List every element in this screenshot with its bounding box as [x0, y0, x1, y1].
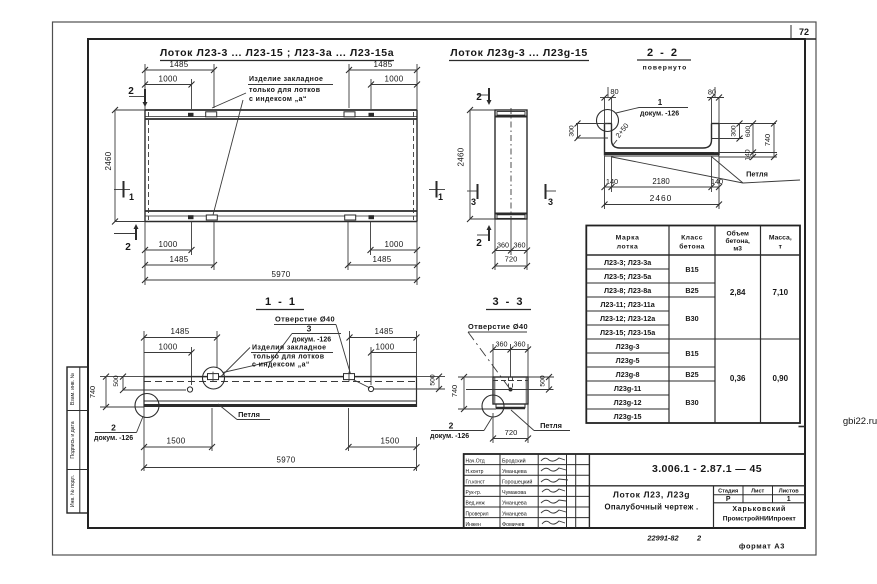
- svg-text:Масса,: Масса,: [769, 235, 792, 242]
- svg-text:720: 720: [505, 428, 518, 437]
- svg-text:повернуто: повернуто: [643, 65, 688, 72]
- svg-text:Отверстие Ø40: Отверстие Ø40: [468, 322, 528, 331]
- svg-text:1000: 1000: [159, 240, 178, 249]
- svg-text:140: 140: [606, 177, 618, 186]
- svg-text:300: 300: [731, 125, 738, 137]
- svg-text:Класс: Класс: [681, 235, 703, 242]
- svg-text:Отверстие Ø40: Отверстие Ø40: [275, 315, 335, 324]
- svg-text:Чумакова: Чумакова: [502, 490, 526, 496]
- svg-text:Горошецкий: Горошецкий: [502, 479, 532, 486]
- svg-text:72: 72: [799, 27, 809, 37]
- svg-text:Опалубочный чертеж .: Опалубочный чертеж .: [605, 503, 699, 512]
- svg-text:360: 360: [514, 241, 526, 250]
- svg-text:Р: Р: [726, 496, 731, 503]
- svg-text:Петля: Петля: [746, 170, 768, 179]
- svg-text:лотка: лотка: [617, 244, 639, 251]
- svg-text:5970: 5970: [272, 270, 291, 279]
- svg-text:Инжен: Инжен: [466, 522, 481, 528]
- svg-text:бетона: бетона: [679, 243, 705, 251]
- svg-text:Уманцева: Уманцева: [502, 511, 527, 517]
- svg-text:Л23g-5: Л23g-5: [616, 356, 640, 365]
- svg-text:500: 500: [540, 375, 547, 387]
- svg-text:600: 600: [745, 126, 752, 138]
- svg-text:докум. -126: докум. -126: [94, 435, 133, 442]
- svg-text:Стадия: Стадия: [718, 488, 738, 494]
- svg-text:360: 360: [497, 241, 509, 250]
- svg-text:Л23g-8: Л23g-8: [616, 370, 640, 379]
- svg-text:3: 3: [471, 197, 476, 207]
- svg-text:2: 2: [128, 86, 134, 97]
- svg-text:1000: 1000: [159, 75, 178, 84]
- svg-text:В25: В25: [685, 370, 698, 379]
- svg-text:2180: 2180: [652, 177, 670, 186]
- svg-text:2: 2: [111, 423, 116, 433]
- svg-text:Бродский: Бродский: [502, 457, 526, 464]
- svg-text:1485: 1485: [374, 60, 393, 69]
- svg-text:Гл.конст: Гл.конст: [466, 480, 486, 486]
- svg-text:формат А3: формат А3: [739, 542, 785, 551]
- svg-text:1000: 1000: [385, 75, 404, 84]
- svg-text:Нач.Отд: Нач.Отд: [466, 458, 485, 464]
- svg-text:1 - 1: 1 - 1: [265, 296, 297, 308]
- svg-text:740: 740: [763, 134, 772, 146]
- svg-text:докум. -126: докум. -126: [640, 111, 679, 118]
- svg-text:2460: 2460: [650, 193, 673, 203]
- svg-text:Лоток Л23g-3 ... Л23g-15: Лоток Л23g-3 ... Л23g-15: [450, 47, 588, 59]
- svg-text:ПромстройНИИпроект: ПромстройНИИпроект: [723, 515, 797, 523]
- svg-text:300: 300: [569, 125, 576, 137]
- svg-text:2 - 2: 2 - 2: [647, 47, 679, 59]
- svg-text:720: 720: [505, 255, 518, 264]
- svg-text:1485: 1485: [373, 255, 392, 264]
- svg-text:1: 1: [129, 192, 134, 202]
- svg-text:740: 740: [88, 386, 97, 398]
- svg-text:Рук-гр.: Рук-гр.: [466, 490, 482, 496]
- svg-text:Л23g-3: Л23g-3: [616, 342, 640, 351]
- svg-text:500: 500: [430, 374, 437, 386]
- svg-text:Проверил: Проверил: [466, 511, 489, 517]
- svg-text:Л23g-12: Л23g-12: [614, 398, 642, 407]
- svg-text:Л23-3; Л23-3а: Л23-3; Л23-3а: [604, 258, 652, 267]
- svg-text:80: 80: [610, 87, 618, 96]
- svg-text:с индексом „а“: с индексом „а“: [249, 96, 307, 103]
- svg-text:Инв. № подл.: Инв. № подл.: [70, 475, 76, 507]
- svg-text:7,10: 7,10: [773, 288, 789, 297]
- svg-text:1485: 1485: [170, 255, 189, 264]
- svg-text:Взам. инв. №: Взам. инв. №: [70, 372, 76, 405]
- svg-text:2: 2: [476, 92, 482, 103]
- svg-text:В30: В30: [685, 398, 698, 407]
- svg-text:Лоток Л23, Л23g: Лоток Л23, Л23g: [613, 490, 690, 500]
- svg-text:м3: м3: [733, 246, 742, 253]
- svg-text:1485: 1485: [171, 327, 190, 336]
- svg-text:1000: 1000: [385, 240, 404, 249]
- svg-text:2: 2: [476, 238, 482, 249]
- svg-text:Изделие закладное: Изделие закладное: [249, 76, 323, 83]
- svg-text:2: 2: [449, 421, 454, 431]
- svg-text:только для лотков: только для лотков: [249, 87, 321, 94]
- svg-text:2460: 2460: [104, 151, 113, 170]
- svg-text:3: 3: [548, 197, 553, 207]
- svg-text:1485: 1485: [170, 60, 189, 69]
- svg-text:1000: 1000: [159, 343, 178, 352]
- svg-text:Лоток Л23-3 ... Л23-15 ; Л23: Лоток Л23-3 ... Л23-15 ; Л23-3а ... Л23-…: [160, 47, 394, 59]
- svg-text:Изделия закладное: Изделия закладное: [252, 345, 326, 352]
- svg-text:В15: В15: [685, 265, 698, 274]
- svg-text:140: 140: [745, 149, 752, 161]
- svg-text:Л23-5; Л23-5а: Л23-5; Л23-5а: [604, 272, 652, 281]
- svg-text:1000: 1000: [376, 343, 395, 352]
- svg-text:0,90: 0,90: [773, 374, 789, 383]
- svg-text:2,84: 2,84: [730, 288, 746, 297]
- svg-text:2: 2: [696, 534, 702, 543]
- svg-text:Марка: Марка: [616, 235, 640, 242]
- svg-text:с индексом „а“: с индексом „а“: [252, 362, 310, 369]
- svg-text:1: 1: [438, 192, 443, 202]
- svg-text:Уманцева: Уманцева: [502, 469, 527, 475]
- svg-text:Фомичев: Фомичев: [502, 522, 525, 528]
- svg-text:докум. -126: докум. -126: [430, 433, 469, 440]
- svg-text:3 - 3: 3 - 3: [492, 296, 524, 308]
- svg-text:Л23-12; Л23-12а: Л23-12; Л23-12а: [600, 314, 656, 323]
- svg-text:1485: 1485: [375, 327, 394, 336]
- svg-text:3: 3: [307, 324, 312, 334]
- svg-text:1: 1: [658, 98, 663, 107]
- svg-text:бетона,: бетона,: [726, 237, 750, 245]
- svg-text:Объем: Объем: [727, 230, 750, 238]
- svg-text:В25: В25: [685, 286, 698, 295]
- svg-text:В15: В15: [685, 349, 698, 358]
- svg-text:360: 360: [514, 340, 526, 349]
- svg-text:1500: 1500: [167, 437, 186, 446]
- svg-text:Уманцева: Уманцева: [502, 501, 527, 507]
- svg-text:1: 1: [787, 496, 791, 503]
- svg-text:Лист: Лист: [751, 488, 764, 494]
- svg-text:Л23g-15: Л23g-15: [614, 412, 642, 421]
- svg-text:740: 740: [450, 385, 459, 397]
- svg-text:Л23-8; Л23-8а: Л23-8; Л23-8а: [604, 286, 652, 295]
- svg-text:1500: 1500: [381, 437, 400, 446]
- svg-text:500: 500: [113, 375, 120, 387]
- svg-text:Вед.инж: Вед.инж: [466, 501, 486, 507]
- svg-text:докум. -126: докум. -126: [292, 337, 331, 344]
- svg-text:22991-82: 22991-82: [646, 534, 679, 543]
- svg-text:2: 2: [125, 242, 131, 253]
- svg-text:В30: В30: [685, 314, 698, 323]
- svg-text:2460: 2460: [457, 147, 466, 166]
- svg-text:Подпись и дата: Подпись и дата: [70, 421, 76, 458]
- svg-text:5970: 5970: [277, 456, 296, 465]
- svg-text:Петля: Петля: [238, 410, 260, 419]
- svg-text:0,36: 0,36: [730, 374, 746, 383]
- svg-text:Л23g-11: Л23g-11: [614, 384, 641, 393]
- svg-text:только для лотков: только для лотков: [253, 354, 325, 361]
- svg-text:Н.контр: Н.контр: [466, 469, 484, 475]
- svg-text:Листов: Листов: [779, 488, 800, 494]
- svg-text:gbi22.ru: gbi22.ru: [843, 416, 877, 427]
- svg-text:Л23-15; Л23-15а: Л23-15; Л23-15а: [600, 328, 656, 337]
- svg-text:360: 360: [496, 340, 508, 349]
- svg-text:Петля: Петля: [540, 421, 562, 430]
- svg-text:Харьковский: Харьковский: [732, 505, 786, 513]
- svg-text:Л23-11; Л23-11а: Л23-11; Л23-11а: [600, 300, 655, 309]
- svg-text:3.006.1 - 2.87.1 — 45: 3.006.1 - 2.87.1 — 45: [652, 463, 762, 475]
